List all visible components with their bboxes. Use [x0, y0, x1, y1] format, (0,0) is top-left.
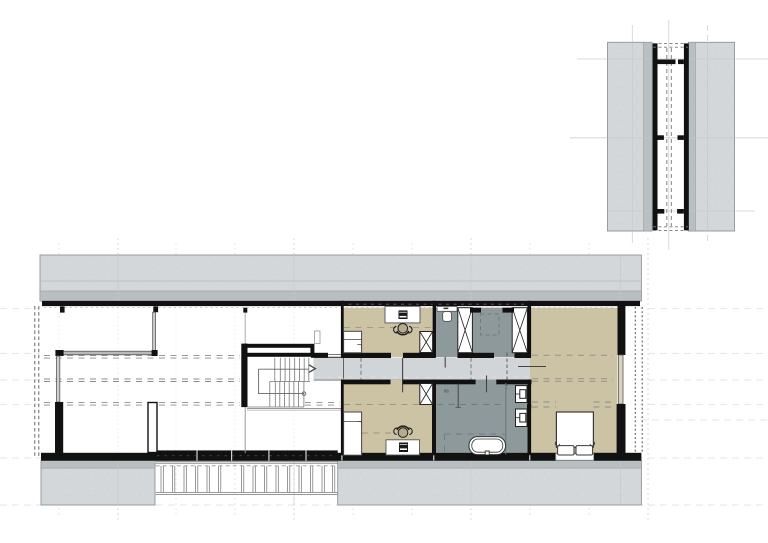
svg-text:06: 06 — [444, 389, 450, 394]
